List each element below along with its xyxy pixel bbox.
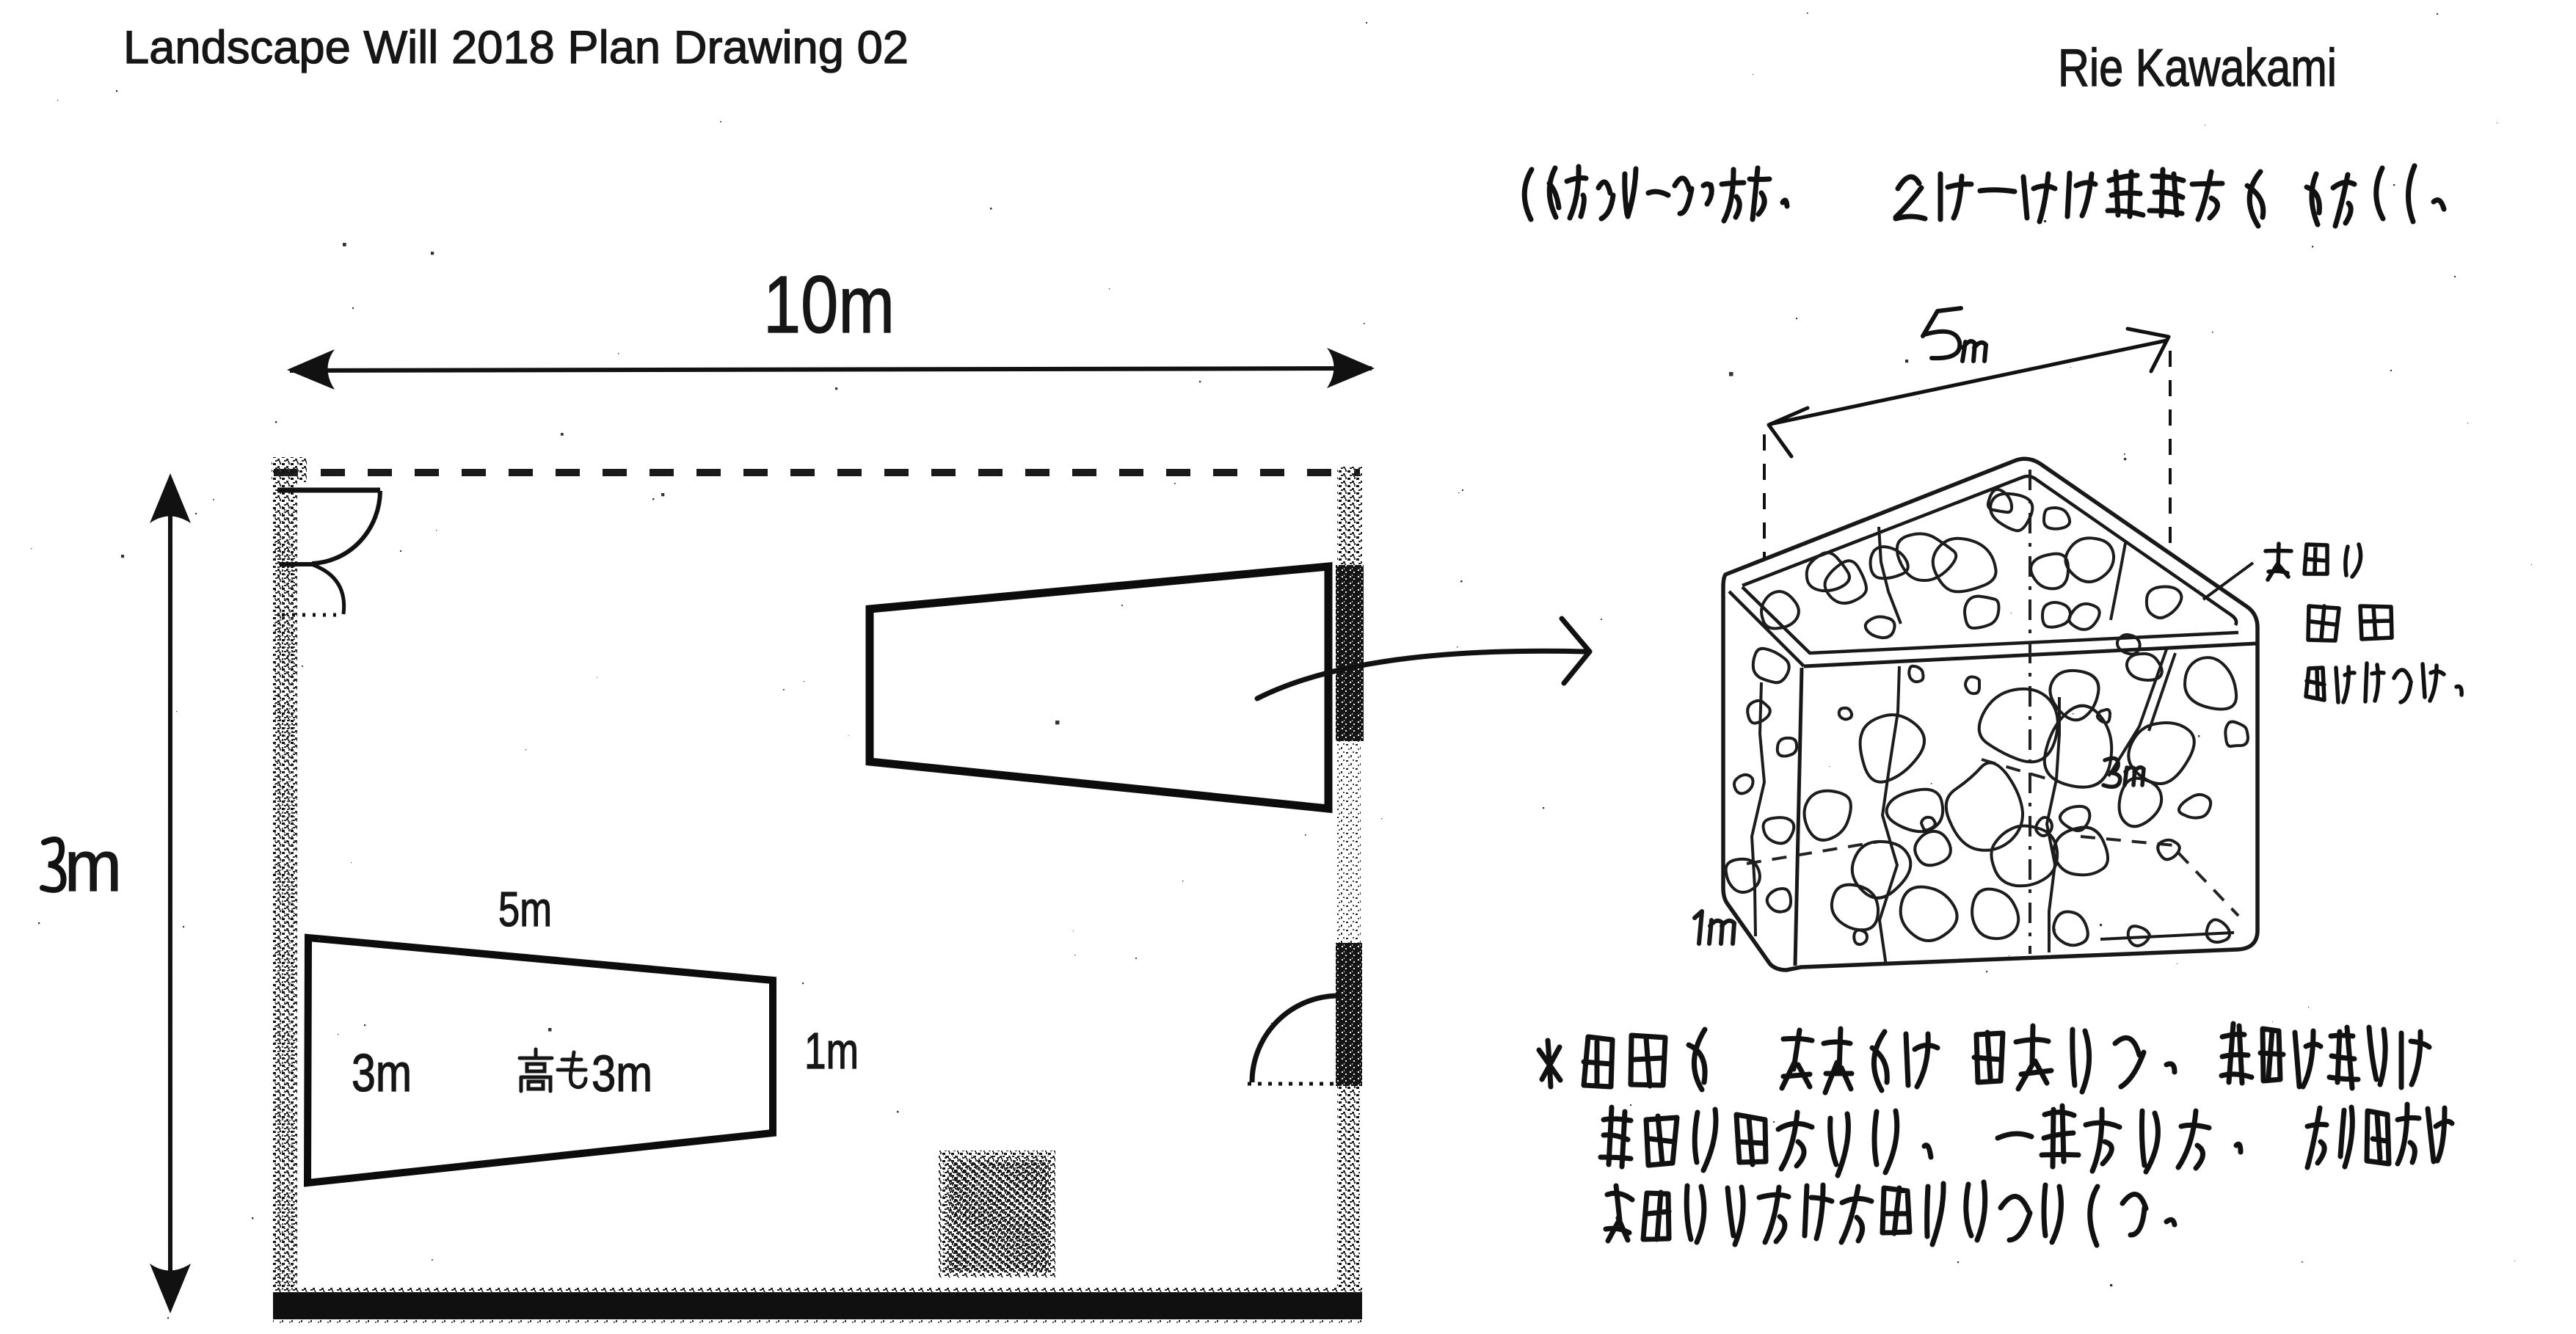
svg-text:m: m: [65, 825, 122, 906]
svg-text:Rie Kawakami: Rie Kawakami: [2058, 39, 2337, 98]
svg-text:5m: 5m: [498, 882, 552, 937]
svg-text:10m: 10m: [763, 260, 895, 350]
svg-text:3m: 3m: [592, 1045, 652, 1102]
svg-text:3m: 3m: [352, 1044, 412, 1103]
svg-text:Landscape Will 2018 Plan Drawi: Landscape Will 2018 Plan Drawing 02: [123, 22, 909, 73]
svg-text:1m: 1m: [804, 1022, 859, 1079]
